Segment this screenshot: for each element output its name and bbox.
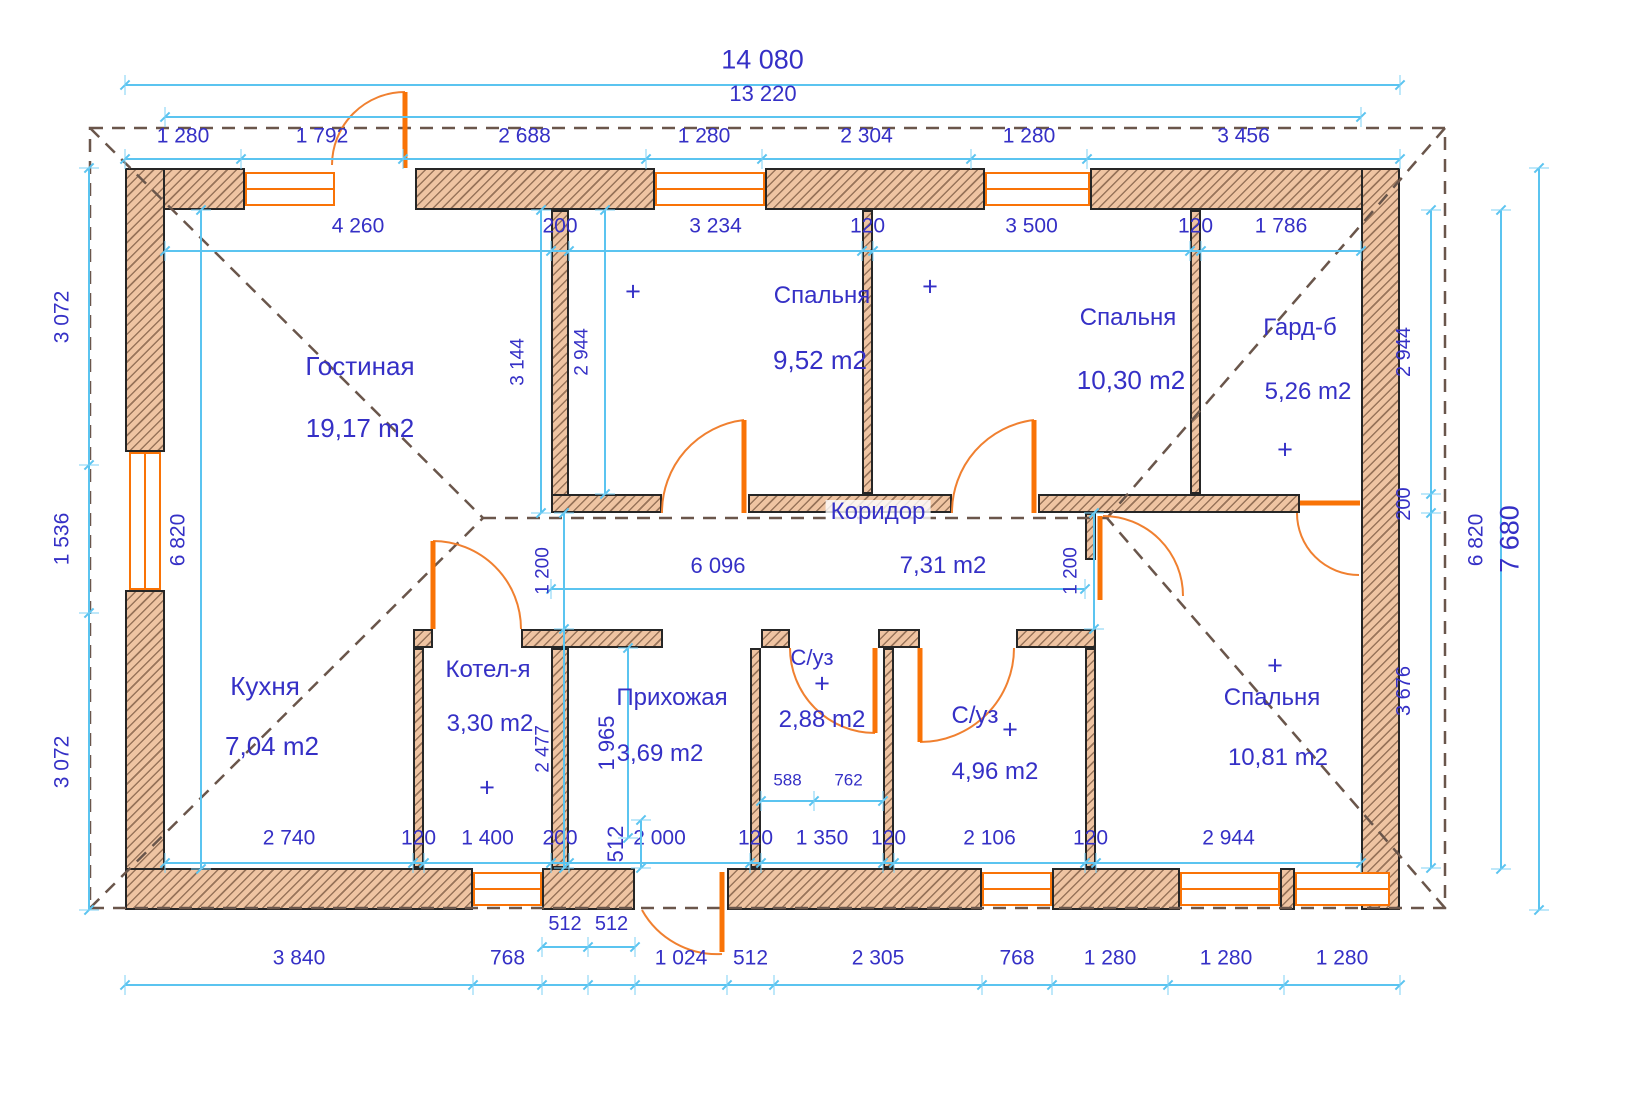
dimension-line [551,588,1085,590]
dimension-guide [79,613,99,614]
dimension-guide [762,149,763,169]
dimension-guide [531,210,551,211]
dimension-guide [551,853,552,873]
room-area: 7,04 m2 [225,733,319,759]
dimension-guide [125,149,126,169]
room-name: Прихожая [616,686,727,710]
dimension-guide [1421,210,1441,211]
dimension-guide [862,241,863,261]
dimension-guide [542,975,543,995]
dimension-label: 3 500 [1005,216,1058,237]
dimension-guide [79,910,99,911]
dimension-label: 1 400 [461,828,514,849]
dimension-label: 2 740 [263,828,316,849]
dimension-label: 6 820 [168,513,189,566]
dimension-guide [125,75,126,95]
dimension-label: 200 [542,216,577,237]
room-name: Коридор [826,500,931,524]
dimension-label: 200 [1394,487,1414,520]
dimension-label: 1 280 [1084,948,1137,969]
room-area: 3,30 m2 [447,712,534,736]
dimension-guide [1400,149,1401,169]
dimension-guide [1421,868,1441,869]
dimension-label: 2 944 [1202,828,1255,849]
dimension-guide [1491,210,1511,211]
dimension-label: 120 [1073,828,1108,849]
room-name: С/уз [951,704,998,728]
dimension-label: 1 350 [796,828,849,849]
dimension-guide [554,868,574,869]
ridge-plus-mark: + [625,279,641,306]
dimension-label: 2 106 [963,828,1016,849]
dimension-label: 1 200 [534,547,553,595]
dimension-label: 1 786 [1255,216,1308,237]
floating-dimension-label: 7,31 m2 [900,554,987,578]
dimension-guide [1361,853,1362,873]
dimension-label: 120 [738,828,773,849]
ridge-plus-mark: + [1002,717,1018,744]
dimension-label: 3 234 [689,216,742,237]
dimension-guide [79,465,99,466]
dimension-guide [883,853,884,873]
dimension-guide [569,241,570,261]
dimension-label: 2 688 [498,126,551,147]
dimension-label: 1 965 [596,715,618,770]
dimension-guide [873,241,874,261]
dimension-label: 1 280 [1003,126,1056,147]
dimension-guide [761,853,762,873]
room-name: Спальня [1080,306,1176,330]
dimension-line [125,984,1400,986]
bedroom2-door-swing-arc [952,420,1034,513]
dimension-guide [1400,975,1401,995]
dimension-guide [595,210,615,211]
room-area: 4,96 m2 [952,760,1039,784]
dimension-guide [542,937,543,957]
dimension-label: 512 [733,948,768,969]
dimension-guide [403,149,404,169]
dimension-label: 512 [605,826,627,863]
dimension-guide [588,937,589,957]
room-area: 2,88 m2 [779,708,866,732]
dimension-label: 3 144 [509,338,528,386]
wardrobe-door-swing-arc [1297,513,1359,575]
dimension-label: 3 840 [273,948,326,969]
roof-ridge-line [90,518,483,908]
dimension-guide [241,149,242,169]
ridge-plus-mark: + [814,671,830,698]
room-area: 10,81 m2 [1228,746,1328,770]
dimension-label: 6 820 [1466,513,1487,566]
dimension-label: 120 [1178,216,1213,237]
dimension-label: 768 [999,948,1034,969]
dimension-guide [551,241,552,261]
dimension-line [165,116,1361,118]
ridge-plus-mark: + [922,274,938,301]
room-area: 3,69 m2 [617,742,704,766]
dimension-label: 768 [490,948,525,969]
room-name: Спальня [1224,686,1320,710]
dimension-guide [191,869,211,870]
dimension-guide [1084,513,1104,514]
dimension-guide [554,513,574,514]
dimension-guide [631,868,651,869]
dimension-line [604,210,606,494]
dimension-guide [79,168,99,169]
dimension-guide [1190,241,1191,261]
dimension-guide [125,975,126,995]
bedroom-right-door-swing-arc [1103,516,1183,596]
roof-overhang-outline [90,128,1445,908]
dimension-label: 1 792 [296,126,349,147]
dimension-line [1430,210,1432,868]
dimension-line [88,168,90,910]
room-area: 5,26 m2 [1265,380,1352,404]
dimension-guide [646,149,647,169]
dimension-label: 3 072 [52,735,73,788]
dimension-label: 2 304 [840,126,893,147]
room-name: С/уз [790,647,833,669]
dimension-label: 120 [871,828,906,849]
room-area: 9,52 m2 [773,347,867,373]
bedroom1-door-swing-arc [662,420,744,513]
dimension-guide [1084,629,1104,630]
dimension-line [165,250,1361,252]
dimension-guide [554,629,574,630]
dimension-label: 762 [834,772,862,789]
dimension-line [761,800,883,802]
dimension-guide [595,494,615,495]
dimension-label: 512 [595,914,628,934]
dimension-guide [473,975,474,995]
dimension-label: 120 [850,216,885,237]
dimension-guide [1421,494,1441,495]
dimension-line [563,513,565,868]
room-name: Гостиная [305,353,414,379]
dimension-guide [424,853,425,873]
room-area: 19,17 m2 [306,415,414,441]
ridge-plus-mark: + [1277,437,1293,464]
dimension-guide [761,791,762,811]
dimension-line [200,210,202,869]
ridge-plus-mark: + [479,775,495,802]
dimension-guide [165,853,166,873]
dimension-guide [635,937,636,957]
boiler-door-swing-arc [433,541,521,629]
dimension-label: 2 305 [852,948,905,969]
dimension-label: 7 680 [1497,505,1524,573]
dimension-guide [1284,975,1285,995]
room-name: Котел-я [445,658,530,682]
dimension-guide [191,210,211,211]
dimension-guide [883,791,884,811]
dimension-label: 4 260 [332,216,385,237]
dimension-guide [774,975,775,995]
dimension-guide [1096,853,1097,873]
dimension-guide [588,975,589,995]
dimension-guide [1400,75,1401,95]
dimension-guide [635,975,636,995]
dimension-guide [814,791,815,811]
dimension-label: 14 080 [721,47,804,74]
dimension-guide [1087,149,1088,169]
dimension-guide [631,820,651,821]
dimension-label: 13 220 [729,83,796,105]
dimension-label: 2 944 [1394,327,1414,377]
room-name: Спальня [774,284,870,308]
dimension-label: 1 280 [157,126,210,147]
dimension-guide [1361,107,1362,127]
dimension-label: 1 280 [678,126,731,147]
dimension-label: 3 456 [1217,126,1270,147]
dimension-guide [413,853,414,873]
dimension-guide [1421,513,1441,514]
dimension-line [640,820,642,868]
dimension-guide [618,648,638,649]
dimension-line [1093,513,1095,629]
dimension-guide [1491,869,1511,870]
dimension-label: 3 072 [52,290,73,343]
dimension-guide [894,853,895,873]
dimension-guide [971,149,972,169]
dimension-guide [531,513,551,514]
dimension-guide [982,975,983,995]
dimension-label: 1 280 [1316,948,1369,969]
dimension-label: 1 536 [52,513,73,566]
dimension-label: 1 280 [1200,948,1253,969]
dimension-guide [1085,579,1086,599]
dimension-guide [1529,168,1549,169]
dimension-guide [750,853,751,873]
floor-plan-canvas: 14 08013 2201 2801 7922 6881 2802 3041 2… [0,0,1647,1100]
roof-ridge-line [90,128,483,518]
dimension-line [1538,168,1540,910]
dimension-label: 588 [773,772,801,789]
dimension-label: 200 [542,828,577,849]
dimension-guide [1201,241,1202,261]
dimension-guide [165,241,166,261]
ridge-plus-mark: + [1267,653,1283,680]
floating-dimension-label: 6 096 [690,555,745,577]
dimension-label: 120 [401,828,436,849]
dimension-guide [727,975,728,995]
dimension-label: 1 200 [1062,547,1081,595]
room-name: Гард-б [1263,316,1337,340]
dimension-guide [1052,975,1053,995]
dimension-guide [1085,853,1086,873]
dimension-label: 3 676 [1394,665,1414,715]
room-name: Кухня [230,673,300,699]
dimension-line [540,210,542,513]
dimension-guide [1361,241,1362,261]
room-area: 10,30 m2 [1077,367,1185,393]
dimension-guide [1529,910,1549,911]
dimension-label: 2 944 [573,328,592,376]
dimension-guide [1168,975,1169,995]
dimension-label: 512 [548,914,581,934]
dimension-label: 1 024 [655,948,708,969]
dimension-label: 2 477 [534,725,553,773]
